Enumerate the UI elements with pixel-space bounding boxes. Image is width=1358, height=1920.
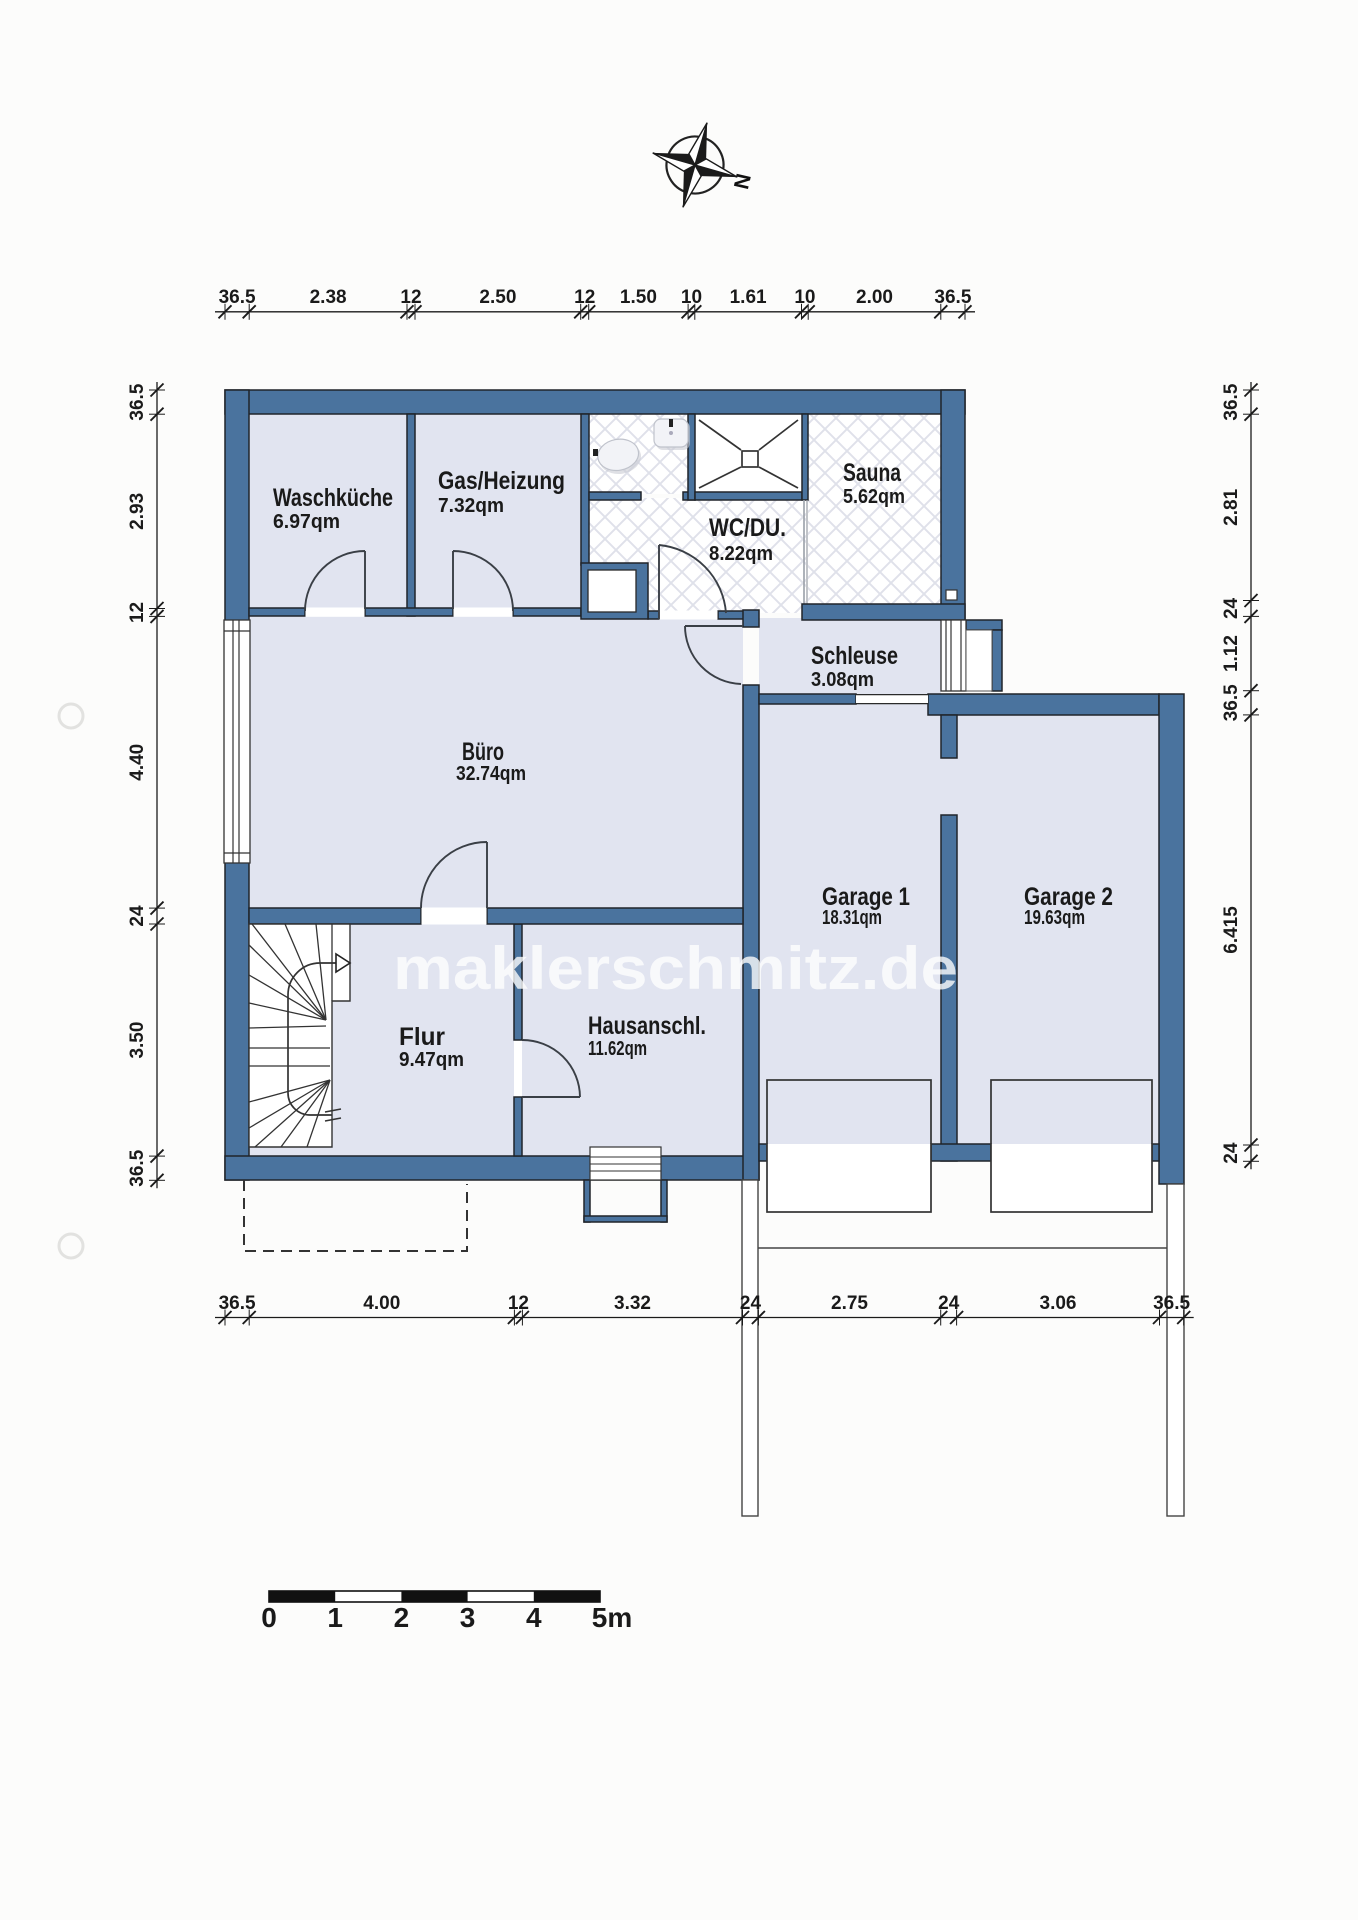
- svg-text:2.50: 2.50: [479, 287, 516, 308]
- svg-text:Flur: Flur: [399, 1023, 445, 1051]
- svg-text:36.5: 36.5: [1221, 684, 1242, 721]
- svg-text:19.63qm: 19.63qm: [1024, 907, 1085, 929]
- svg-text:36.5: 36.5: [219, 287, 256, 308]
- svg-text:3.06: 3.06: [1040, 1293, 1077, 1314]
- svg-text:2.38: 2.38: [310, 287, 347, 308]
- svg-text:1.12: 1.12: [1221, 635, 1242, 672]
- svg-text:24: 24: [938, 1293, 960, 1314]
- svg-text:maklerschmitz.de: maklerschmitz.de: [393, 935, 958, 1002]
- svg-text:Schleuse: Schleuse: [811, 642, 898, 670]
- svg-text:7.32qm: 7.32qm: [438, 495, 504, 517]
- svg-text:Waschküche: Waschküche: [273, 484, 393, 512]
- svg-text:3.32: 3.32: [614, 1293, 651, 1314]
- svg-text:2.75: 2.75: [831, 1293, 868, 1314]
- svg-text:24: 24: [127, 905, 148, 927]
- svg-text:36.5: 36.5: [127, 383, 148, 420]
- svg-text:1034: 1034: [588, 0, 644, 6]
- svg-text:12: 12: [400, 287, 421, 308]
- svg-text:11.62qm: 11.62qm: [588, 1038, 647, 1060]
- svg-text:2.93: 2.93: [127, 493, 148, 530]
- svg-text:2: 2: [394, 1602, 410, 1633]
- svg-text:24: 24: [1221, 597, 1242, 619]
- svg-text:1.50: 1.50: [620, 287, 657, 308]
- svg-text:3: 3: [460, 1602, 476, 1633]
- svg-text:10: 10: [681, 287, 702, 308]
- svg-text:1.61: 1.61: [730, 287, 767, 308]
- svg-text:3.50: 3.50: [127, 1022, 148, 1059]
- svg-text:36.5: 36.5: [127, 1149, 148, 1186]
- svg-text:24: 24: [1221, 1142, 1242, 1164]
- svg-text:18.31qm: 18.31qm: [822, 907, 882, 929]
- svg-text:32.74qm: 32.74qm: [456, 763, 526, 785]
- svg-text:2.00: 2.00: [856, 287, 893, 308]
- svg-text:Büro: Büro: [462, 738, 504, 766]
- svg-text:4.40: 4.40: [127, 744, 148, 781]
- svg-text:10: 10: [794, 287, 815, 308]
- svg-text:0: 0: [261, 1602, 277, 1633]
- svg-text:12: 12: [508, 1293, 529, 1314]
- svg-text:8.22qm: 8.22qm: [709, 543, 773, 565]
- svg-text:36.5: 36.5: [934, 287, 971, 308]
- svg-text:5.62qm: 5.62qm: [843, 486, 905, 508]
- svg-text:Hausanschl.: Hausanschl.: [588, 1012, 706, 1040]
- svg-text:2.81: 2.81: [1221, 488, 1242, 525]
- svg-text:3.08qm: 3.08qm: [811, 669, 874, 691]
- svg-text:24: 24: [740, 1293, 762, 1314]
- svg-text:1: 1: [327, 1602, 343, 1633]
- svg-text:4: 4: [526, 1602, 542, 1633]
- svg-text:6.97qm: 6.97qm: [273, 511, 340, 533]
- svg-text:12: 12: [574, 287, 595, 308]
- svg-text:Gas/Heizung: Gas/Heizung: [438, 467, 565, 495]
- svg-text:Sauna: Sauna: [843, 459, 902, 487]
- svg-text:6.415: 6.415: [1221, 906, 1242, 954]
- svg-text:36.5: 36.5: [219, 1293, 256, 1314]
- svg-text:4.00: 4.00: [363, 1293, 400, 1314]
- svg-text:9.47qm: 9.47qm: [399, 1049, 464, 1071]
- svg-text:36.5: 36.5: [1153, 1293, 1190, 1314]
- svg-text:5m: 5m: [592, 1602, 632, 1633]
- svg-text:12: 12: [127, 602, 148, 623]
- svg-text:36.5: 36.5: [1221, 383, 1242, 420]
- svg-text:WC/DU.: WC/DU.: [709, 514, 786, 542]
